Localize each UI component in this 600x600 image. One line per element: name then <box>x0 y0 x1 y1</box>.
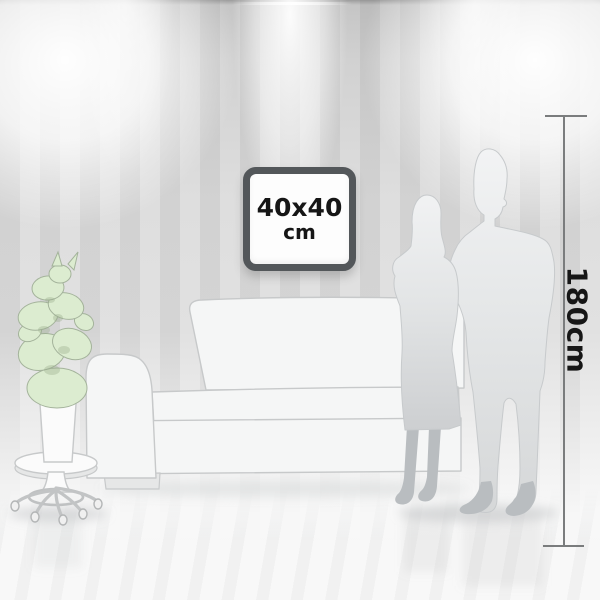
woman-body <box>393 195 461 430</box>
stool-foot <box>11 501 19 511</box>
room-scene-graphic <box>0 0 600 600</box>
plant-silhouette <box>14 252 97 462</box>
sofa-armrest <box>86 354 156 478</box>
plant-foliage <box>14 252 97 408</box>
frame-size-label: 40x40 <box>257 195 343 221</box>
artwork-frame: 40x40 cm <box>243 167 356 271</box>
room-preview: 40x40 cm 180cm <box>0 0 600 600</box>
stool-foot <box>79 509 87 519</box>
stool-foot <box>94 499 102 509</box>
stool-foot <box>31 512 39 522</box>
height-label: 180cm <box>561 267 594 374</box>
stool-foot <box>59 515 67 525</box>
frame-unit-label: cm <box>283 222 316 243</box>
ruler-top-cap <box>545 115 587 117</box>
ruler-bottom-cap <box>543 545 584 547</box>
